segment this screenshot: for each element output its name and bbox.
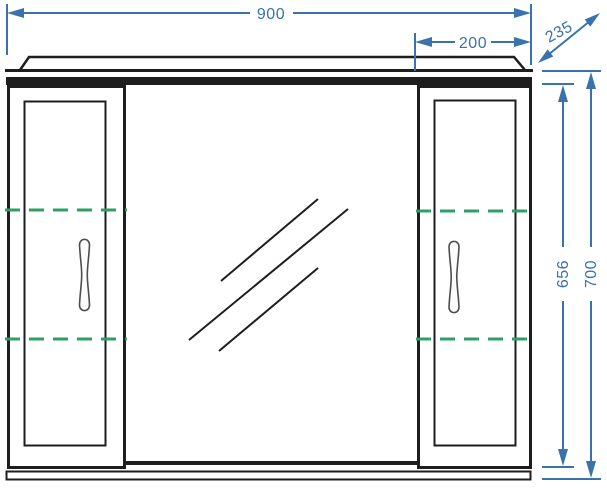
mirror-reflection-line (221, 199, 318, 281)
mirror-reflection-line (219, 268, 318, 351)
cabinet-drawing: 900 200 235 656 700 (0, 0, 607, 489)
arrowhead-top (558, 85, 568, 102)
arrowhead-right (514, 8, 531, 18)
dimension-label-right-section-width: 200 (459, 35, 487, 52)
arrowhead-right (514, 37, 531, 47)
left-door-panel (25, 102, 106, 446)
technical-drawing-canvas: 900 200 235 656 700 (0, 0, 607, 489)
dimension-200: 200 (415, 33, 531, 71)
dimension-label-depth: 235 (543, 18, 576, 46)
mirror-panel (189, 199, 348, 351)
arrowhead-bottom (586, 461, 596, 478)
mirror-reflection-line (189, 209, 348, 340)
dimension-label-total-height: 700 (583, 260, 600, 288)
dimension-label-inner-height: 656 (555, 260, 572, 288)
right-door-panel (435, 101, 516, 446)
arrowhead-left (7, 8, 24, 18)
arrowhead-bottom (558, 449, 568, 466)
left-cabinet-body (9, 87, 125, 468)
base-plinth (7, 472, 531, 480)
arrowhead-top (586, 72, 596, 89)
left-door-handle (80, 239, 90, 310)
dimension-235: 235 (538, 13, 600, 63)
crown-top-board (20, 57, 525, 70)
dimension-656: 656 (542, 84, 574, 467)
arrowhead-left (415, 37, 432, 47)
right-door-handle (449, 241, 459, 312)
top-rail-band (6, 77, 532, 85)
dimension-label-total-width: 900 (257, 6, 285, 23)
